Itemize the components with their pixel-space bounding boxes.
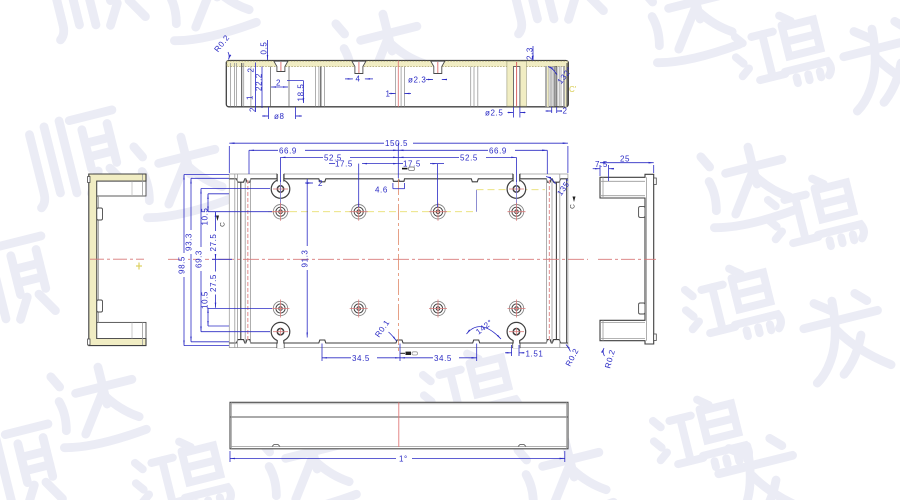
- svg-text:C: C: [220, 222, 227, 227]
- svg-text:150.5: 150.5: [385, 139, 408, 148]
- svg-text:1.51: 1.51: [526, 349, 544, 358]
- svg-text:34.5: 34.5: [352, 354, 370, 363]
- svg-text:2.3: 2.3: [526, 47, 535, 60]
- svg-text:ø2.5: ø2.5: [485, 109, 503, 118]
- svg-text:2: 2: [249, 107, 258, 112]
- svg-text:25: 25: [620, 155, 630, 164]
- svg-text:93.3: 93.3: [185, 233, 194, 251]
- svg-text:ø2.3: ø2.3: [408, 76, 426, 85]
- svg-text:C': C': [569, 85, 577, 94]
- svg-text:10.5: 10.5: [201, 291, 210, 309]
- svg-text:91.3: 91.3: [301, 250, 310, 268]
- svg-text:0.5: 0.5: [260, 42, 269, 55]
- svg-text:69.3: 69.3: [195, 250, 204, 268]
- svg-text:10.5: 10.5: [201, 208, 210, 226]
- svg-text:27.5: 27.5: [209, 274, 218, 292]
- svg-text:22.2: 22.2: [255, 73, 264, 91]
- svg-text:18.5: 18.5: [297, 84, 306, 102]
- svg-text:ø8: ø8: [274, 112, 285, 121]
- svg-text:34.5: 34.5: [434, 354, 452, 363]
- svg-text:2: 2: [318, 179, 323, 188]
- svg-text:2: 2: [276, 79, 281, 88]
- svg-text:66.9: 66.9: [279, 146, 297, 155]
- svg-text:C: C: [570, 204, 577, 209]
- svg-text:2: 2: [247, 67, 256, 72]
- svg-text:66.9: 66.9: [489, 146, 507, 155]
- svg-text:1: 1: [246, 95, 255, 100]
- svg-text:7.5: 7.5: [595, 160, 608, 169]
- svg-text:52.5: 52.5: [460, 153, 478, 162]
- svg-text:27.5: 27.5: [209, 234, 218, 252]
- svg-text:98.5: 98.5: [178, 256, 187, 274]
- svg-text:4.6: 4.6: [375, 186, 388, 195]
- svg-text:1: 1: [386, 90, 391, 99]
- svg-text:17.5: 17.5: [335, 160, 353, 169]
- svg-text:4: 4: [356, 75, 361, 84]
- svg-text:1°: 1°: [399, 455, 408, 464]
- svg-text:2: 2: [563, 107, 568, 116]
